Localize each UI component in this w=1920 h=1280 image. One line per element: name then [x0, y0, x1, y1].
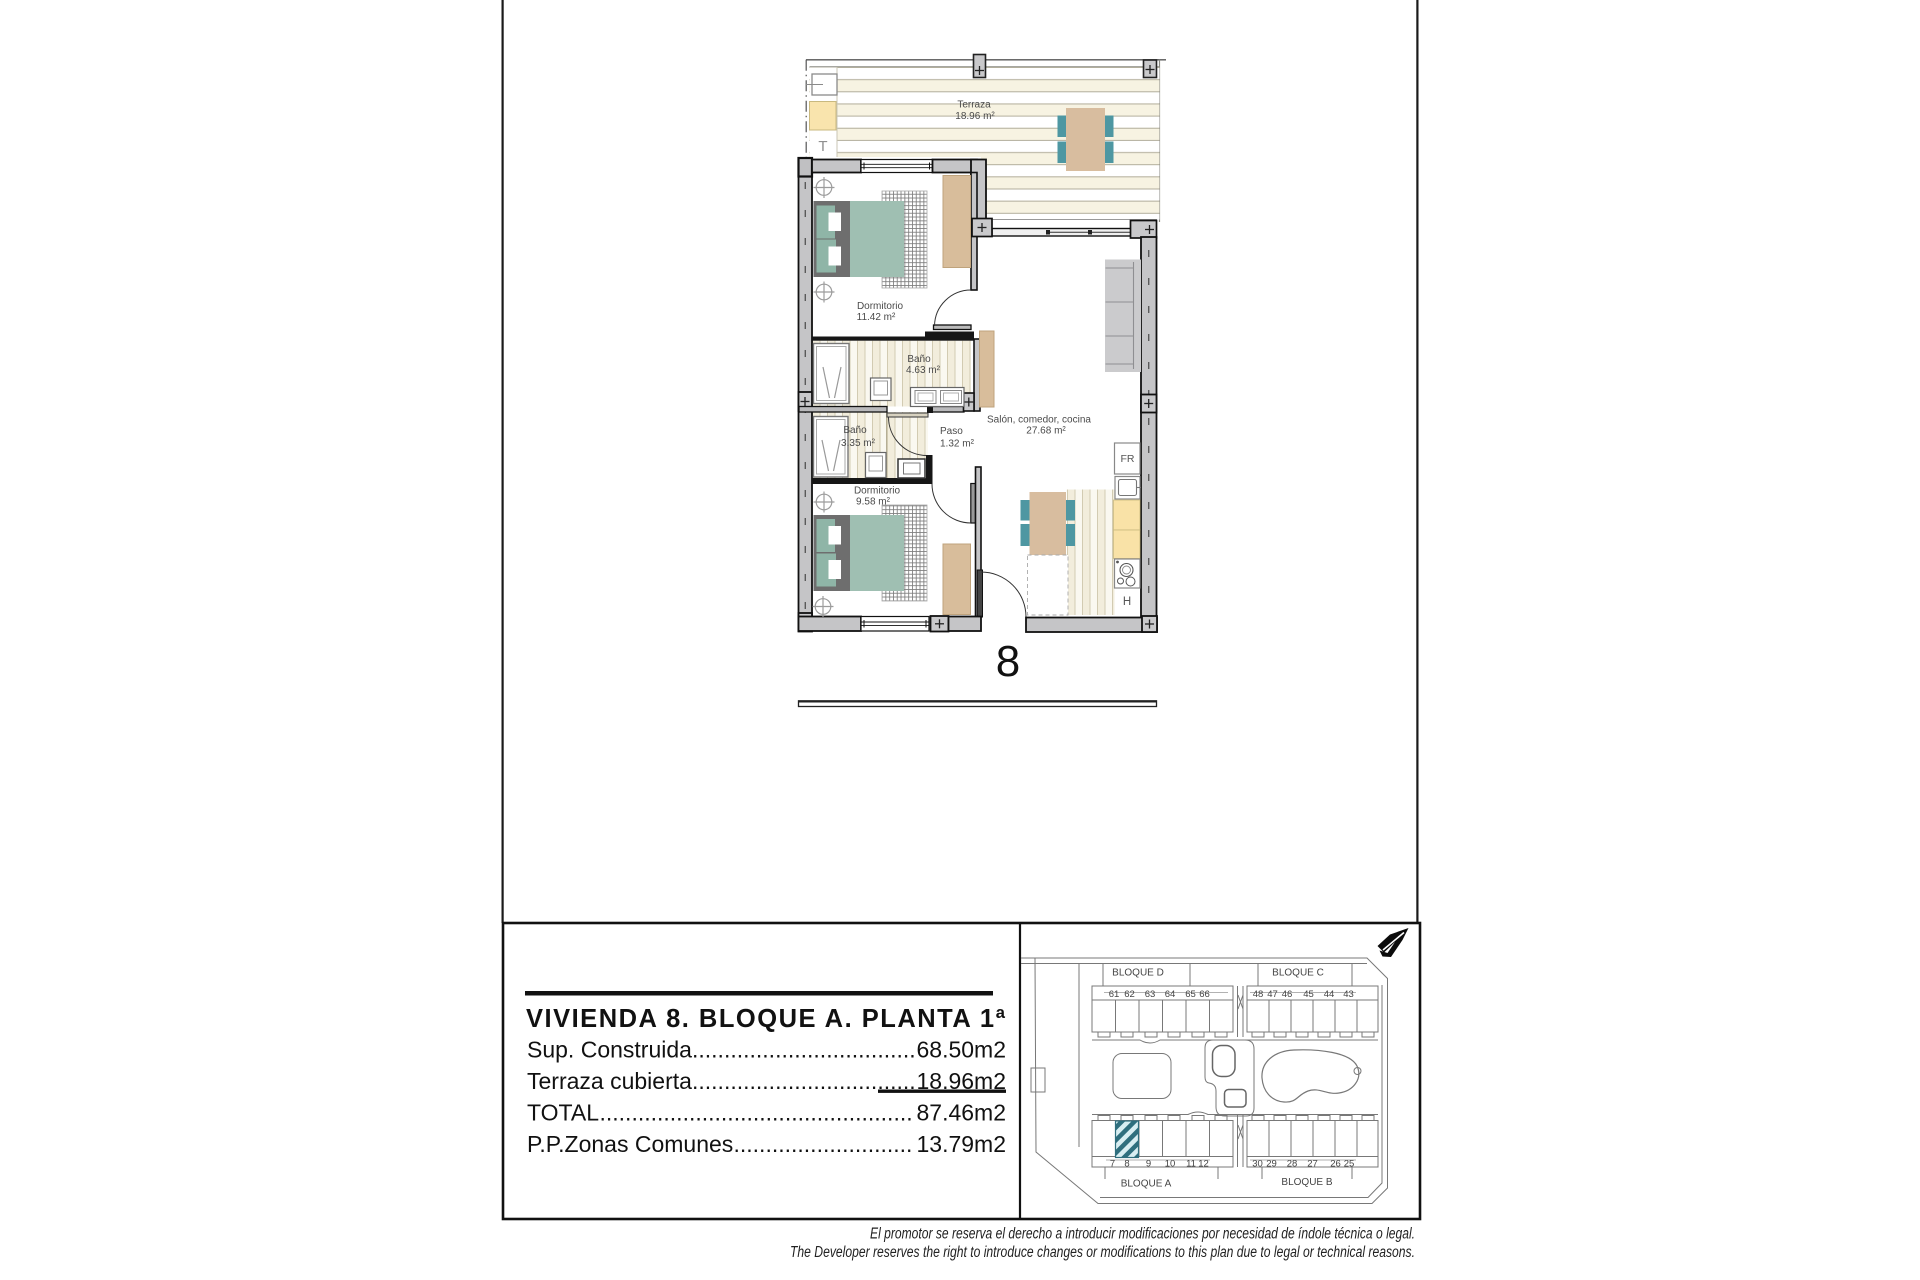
- svg-text:47: 47: [1267, 989, 1278, 1000]
- svg-text:FR: FR: [1121, 453, 1135, 465]
- svg-text:11.42 m²: 11.42 m²: [857, 312, 896, 323]
- svg-text:13.79m2: 13.79m2: [916, 1131, 1006, 1157]
- svg-text:11: 11: [1186, 1159, 1196, 1170]
- svg-text:30: 30: [1252, 1159, 1263, 1170]
- svg-text:25: 25: [1344, 1159, 1355, 1170]
- svg-text:Dormitorio: Dormitorio: [857, 301, 904, 312]
- svg-text:10: 10: [1165, 1159, 1176, 1170]
- svg-text:45: 45: [1303, 989, 1314, 1000]
- svg-text:Baño: Baño: [907, 354, 931, 365]
- svg-text:8: 8: [996, 637, 1020, 686]
- svg-text:1.32 m²: 1.32 m²: [940, 439, 975, 450]
- svg-text:TOTAL: TOTAL: [527, 1100, 599, 1126]
- svg-text:48: 48: [1253, 989, 1264, 1000]
- svg-text:65: 65: [1185, 989, 1196, 1000]
- svg-text:12: 12: [1198, 1159, 1209, 1170]
- svg-text:..............................: ...................................: [692, 1037, 916, 1063]
- svg-text:9: 9: [1146, 1159, 1151, 1170]
- svg-text:BLOQUE B: BLOQUE B: [1281, 1177, 1332, 1188]
- svg-text:H: H: [1123, 596, 1131, 608]
- svg-text:9.58 m²: 9.58 m²: [856, 497, 891, 508]
- svg-text:29: 29: [1266, 1159, 1277, 1170]
- svg-text:62: 62: [1124, 989, 1135, 1000]
- svg-text:46: 46: [1282, 989, 1293, 1000]
- svg-text:VIVIENDA 8. BLOQUE A. PLANTA 1: VIVIENDA 8. BLOQUE A. PLANTA 1ª: [526, 1005, 1007, 1033]
- svg-text:87.46m2: 87.46m2: [916, 1100, 1006, 1126]
- svg-text:Paso: Paso: [940, 426, 963, 437]
- svg-text:The Developer reserves the rig: The Developer reserves the right to intr…: [790, 1244, 1415, 1261]
- svg-text:P.P.Zonas Comunes: P.P.Zonas Comunes: [527, 1131, 733, 1157]
- svg-text:28: 28: [1287, 1159, 1298, 1170]
- svg-text:BLOQUE A: BLOQUE A: [1121, 1179, 1172, 1190]
- svg-text:BLOQUE D: BLOQUE D: [1112, 968, 1164, 979]
- svg-text:T: T: [818, 138, 827, 155]
- svg-text:Sup. Construida: Sup. Construida: [527, 1037, 692, 1063]
- svg-text:Salón, comedor, cocina: Salón, comedor, cocina: [987, 415, 1091, 426]
- svg-text:44: 44: [1324, 989, 1335, 1000]
- svg-text:Dormitorio: Dormitorio: [854, 486, 901, 497]
- svg-text:7: 7: [1110, 1159, 1115, 1170]
- svg-text:26: 26: [1330, 1159, 1341, 1170]
- svg-text:Terraza cubierta: Terraza cubierta: [527, 1068, 692, 1094]
- svg-text:27: 27: [1307, 1159, 1318, 1170]
- svg-text:............................: ............................: [734, 1131, 913, 1157]
- svg-text:64: 64: [1165, 989, 1176, 1000]
- svg-text:4.63 m²: 4.63 m²: [906, 365, 941, 376]
- svg-text:43: 43: [1343, 989, 1354, 1000]
- svg-text:Baño: Baño: [843, 425, 867, 436]
- svg-text:66: 66: [1199, 989, 1210, 1000]
- svg-text:BLOQUE C: BLOQUE C: [1272, 968, 1324, 979]
- svg-text:18.96 m²: 18.96 m²: [955, 111, 995, 122]
- svg-text:..............................: ........................................…: [600, 1100, 913, 1126]
- svg-text:27.68 m²: 27.68 m²: [1026, 426, 1066, 437]
- svg-text:El promotor se reserva el dere: El promotor se reserva el derecho a intr…: [870, 1226, 1415, 1243]
- svg-text:63: 63: [1145, 989, 1156, 1000]
- svg-text:61: 61: [1109, 989, 1120, 1000]
- svg-text:3.35 m²: 3.35 m²: [841, 438, 876, 449]
- svg-text:Terraza: Terraza: [957, 100, 991, 111]
- svg-text:8: 8: [1124, 1159, 1129, 1170]
- svg-text:68.50m2: 68.50m2: [916, 1037, 1006, 1063]
